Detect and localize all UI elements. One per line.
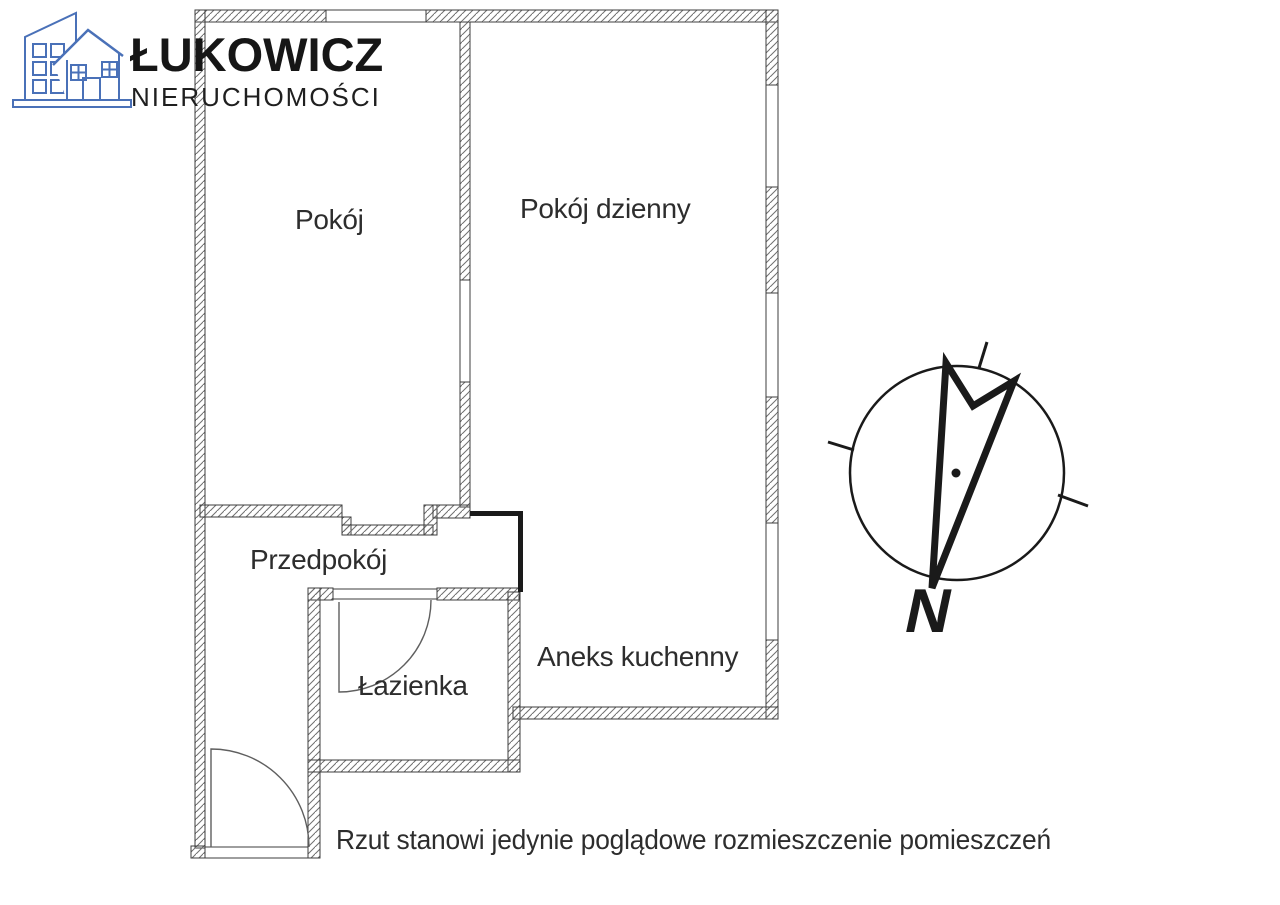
window bbox=[766, 293, 778, 397]
logo-base-bar bbox=[13, 100, 131, 107]
wall bbox=[426, 10, 778, 22]
compass-center-dot bbox=[952, 469, 961, 478]
window bbox=[766, 523, 778, 640]
room-label-lazienka: Łazienka bbox=[358, 670, 468, 702]
door-opening bbox=[333, 589, 437, 599]
wall bbox=[513, 707, 778, 719]
entry-door-arc bbox=[211, 749, 309, 847]
wall bbox=[342, 525, 433, 535]
door-opening bbox=[205, 847, 308, 858]
compass-tick bbox=[1058, 495, 1088, 506]
floor-plan-page: N ŁUKOWICZ NIERUCHOMOŚCI Pokó bbox=[0, 0, 1280, 905]
wall bbox=[460, 382, 470, 507]
room-label-pokoj: Pokój bbox=[295, 204, 364, 236]
logo-icon bbox=[13, 13, 131, 107]
brand-name: ŁUKOWICZ bbox=[130, 30, 383, 80]
wall bbox=[191, 846, 205, 858]
north-label: N bbox=[899, 577, 958, 646]
partition-segment bbox=[470, 511, 523, 516]
partition-segment bbox=[518, 511, 523, 592]
window bbox=[326, 10, 426, 22]
wall bbox=[195, 10, 326, 22]
compass-rose: N bbox=[828, 342, 1088, 646]
wall bbox=[308, 760, 520, 772]
wall bbox=[460, 22, 470, 280]
window bbox=[460, 280, 470, 382]
wall bbox=[508, 592, 520, 772]
room-label-przedpokoj: Przedpokój bbox=[250, 544, 387, 576]
compass-tick bbox=[828, 442, 854, 450]
brand-subtitle: NIERUCHOMOŚCI bbox=[131, 83, 381, 112]
wall bbox=[195, 10, 205, 848]
room-label-pokoj-dzienny: Pokój dzienny bbox=[520, 193, 690, 225]
wall bbox=[200, 505, 342, 517]
wall bbox=[433, 505, 470, 518]
compass-tick bbox=[979, 342, 987, 368]
room-label-aneks-kuchenny: Aneks kuchenny bbox=[537, 641, 738, 673]
floor-plan-drawing: N bbox=[0, 0, 1280, 905]
wall bbox=[308, 588, 320, 858]
wall bbox=[766, 397, 778, 523]
wall bbox=[766, 187, 778, 293]
windows bbox=[205, 10, 778, 858]
north-arrow bbox=[932, 363, 1014, 588]
wall bbox=[766, 10, 778, 85]
doors bbox=[211, 600, 431, 847]
wall bbox=[437, 588, 519, 600]
disclaimer-text: Rzut stanowi jedynie poglądowe rozmieszc… bbox=[336, 824, 1051, 856]
window bbox=[766, 85, 778, 187]
walls bbox=[191, 10, 778, 858]
partition-wall bbox=[470, 511, 523, 592]
